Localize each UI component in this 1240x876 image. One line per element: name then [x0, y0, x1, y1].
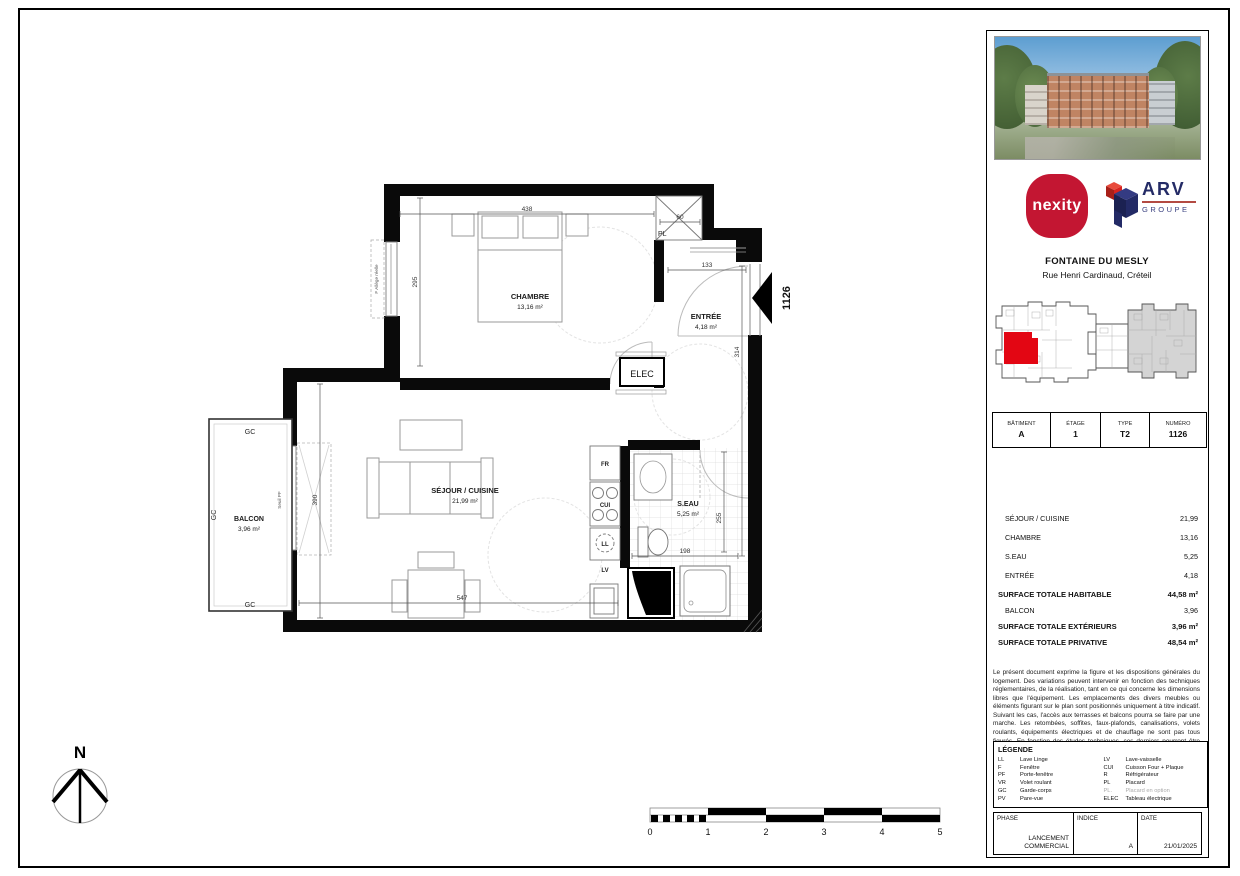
legend-desc: Tableau électrique: [1126, 796, 1172, 803]
arv-name: ARV: [1142, 180, 1200, 198]
dim-entree-h: 314: [734, 346, 741, 357]
scale-3: 3: [821, 827, 826, 837]
surface-label: SURFACE TOTALE HABITABLE: [998, 590, 1111, 599]
arv-sub: GROUPE: [1142, 205, 1200, 214]
legend-col-left: LLLave Linge FFenêtre PFPorte-fenêtre VR…: [998, 757, 1098, 802]
unit-cell-type: TYPE T2: [1101, 413, 1150, 447]
surface-label: S.EAU: [998, 552, 1027, 561]
phase-value-line1: LANCEMENT: [1024, 835, 1069, 843]
surface-label: SURFACE TOTALE EXTÉRIEURS: [998, 622, 1117, 631]
project-header: FONTAINE DU MESLY Rue Henri Cardinaud, C…: [992, 256, 1202, 280]
gc-label-top: GC: [245, 429, 256, 436]
unit-cell-numero: NUMÉRO 1126: [1150, 413, 1206, 447]
legend-desc: Placard en option: [1126, 788, 1170, 795]
surface-value: 48,54 m²: [1168, 638, 1198, 647]
scale-2: 2: [763, 827, 768, 837]
legend-abbr: CUI: [1104, 765, 1126, 772]
surface-total-habitable: SURFACE TOTALE HABITABLE 44,58 m²: [998, 590, 1198, 606]
legend-row: LVLave-vaisselle: [1104, 757, 1204, 764]
legend-col-right: LVLave-vaisselle CUICuisson Four + Plaqu…: [1104, 757, 1204, 802]
arv-rule: [1142, 201, 1196, 203]
surface-row: CHAMBRE 13,16: [998, 533, 1198, 552]
surface-row-balcon: BALCON 3,96: [998, 606, 1198, 622]
legend-desc: Réfrigérateur: [1126, 772, 1159, 779]
legend-desc: Lave-vaisselle: [1126, 757, 1162, 764]
legend-abbr: F: [998, 765, 1020, 772]
legend-abbr: PL: [1104, 780, 1126, 787]
legend-row: RRéfrigérateur: [1104, 772, 1204, 779]
surface-row: S.EAU 5,25: [998, 552, 1198, 571]
room-balcon-area: 3,96 m²: [238, 526, 261, 533]
indice-value: A: [1129, 843, 1133, 851]
room-chambre: CHAMBRE: [511, 292, 549, 301]
surface-value: 21,99: [1180, 514, 1198, 523]
surface-value: 13,16: [1180, 533, 1198, 542]
scale-bar: 0 1 2 3 4 5: [638, 796, 958, 844]
surface-total-exterieurs: SURFACE TOTALE EXTÉRIEURS 3,96 m²: [998, 622, 1198, 638]
north-label: N: [74, 743, 86, 762]
gc-label-left: GC: [211, 510, 218, 521]
surface-label: CHAMBRE: [998, 533, 1041, 542]
gc-label-bottom: GC: [245, 602, 256, 609]
legend-row: CUICuisson Four + Plaque: [1104, 765, 1204, 772]
legend-title: LÉGENDE: [998, 745, 1203, 754]
legend-row: GCGarde-corps: [998, 788, 1098, 795]
entrance-arrow-icon: [752, 272, 772, 324]
project-address: Rue Henri Cardinaud, Créteil: [992, 270, 1202, 280]
legend-desc: Garde-corps: [1020, 788, 1052, 795]
legend-abbr: VR: [998, 780, 1020, 787]
surface-value: 3,96: [1184, 606, 1198, 615]
room-sejour-area: 21,99 m²: [452, 498, 478, 505]
legend-abbr: PV: [998, 796, 1020, 803]
room-entree-area: 4,18 m²: [695, 324, 718, 331]
scale-0: 0: [647, 827, 652, 837]
legend-row: PVPare-vue: [998, 796, 1098, 803]
legend-box: LÉGENDE LLLave Linge FFenêtre PFPorte-fe…: [993, 741, 1208, 808]
room-balcon: BALCON: [234, 516, 264, 523]
north-arrow: N: [36, 738, 126, 838]
legend-abbr: PF: [998, 772, 1020, 779]
living-furniture: [367, 420, 493, 618]
legend-abbr: LV: [1104, 757, 1126, 764]
pl-label: PL: [658, 231, 667, 238]
nexity-logo: nexity: [1026, 174, 1088, 238]
surface-total-privative: SURFACE TOTALE PRIVATIVE 48,54 m²: [998, 638, 1198, 654]
date-value: 21/01/2025: [1164, 843, 1197, 851]
nexity-logo-text: nexity: [1032, 197, 1081, 215]
legend-row-optional: PL.Placard en option: [1104, 788, 1204, 795]
arv-groupe-logo: ARV GROUPE: [1100, 176, 1200, 238]
fr-label: FR: [601, 462, 610, 468]
project-name: FONTAINE DU MESLY: [992, 256, 1202, 267]
legend-desc: Porte-fenêtre: [1020, 772, 1053, 779]
unit-header: BÂTIMENT: [1007, 421, 1035, 427]
ll-label: LL: [601, 542, 609, 548]
surface-value: 3,96 m²: [1172, 622, 1198, 631]
unit-cell-etage: ÉTAGE 1: [1051, 413, 1101, 447]
unit-value: 1126: [1169, 429, 1187, 439]
date-header: DATE: [1141, 815, 1198, 822]
legend-desc: Pare-vue: [1020, 796, 1043, 803]
legend-row: LLLave Linge: [998, 757, 1098, 764]
unit-header: ÉTAGE: [1066, 421, 1085, 427]
dim-sejour-w: 547: [457, 595, 468, 602]
room-entree: ENTRÉE: [691, 312, 721, 321]
legend-abbr: PL.: [1104, 788, 1126, 795]
surface-label: SURFACE TOTALE PRIVATIVE: [998, 638, 1107, 647]
dim-sejour-h: 390: [312, 494, 319, 505]
scale-5: 5: [937, 827, 942, 837]
unit-number-label: 1126: [781, 286, 793, 310]
unit-value: T2: [1120, 429, 1130, 439]
unit-header: NUMÉRO: [1166, 421, 1191, 427]
legend-desc: Lave Linge: [1020, 757, 1048, 764]
indice-cell: INDICE A: [1074, 813, 1138, 854]
dim-pl-w: 60: [676, 214, 684, 221]
room-seau-area: 5,25 m²: [677, 511, 700, 518]
legend-abbr: R: [1104, 772, 1126, 779]
lv-label: LV: [601, 568, 608, 574]
seuil-pf-label: Seuil PF: [277, 491, 282, 509]
elec-label: ELEC: [630, 369, 654, 379]
phase-cell: PHASE LANCEMENT COMMERCIAL: [994, 813, 1074, 854]
site-key-plan: [994, 292, 1200, 390]
room-seau: S.EAU: [677, 501, 698, 508]
surface-row: ENTRÉE 4,18: [998, 571, 1198, 590]
legend-row: VRVolet roulant: [998, 780, 1098, 787]
indice-header: INDICE: [1077, 815, 1134, 822]
surface-value: 5,25: [1184, 552, 1198, 561]
legend-desc: Cuisson Four + Plaque: [1126, 765, 1184, 772]
legend-abbr: ELEC: [1104, 796, 1126, 803]
unit-info-table: BÂTIMENT A ÉTAGE 1 TYPE T2 NUMÉRO 1126: [992, 412, 1207, 448]
dim-chambre-h: 295: [412, 276, 419, 287]
arv-cube-icon: [1100, 176, 1140, 232]
scale-1: 1: [705, 827, 710, 837]
legend-desc: Fenêtre: [1020, 765, 1040, 772]
surface-value: 44,58 m²: [1168, 590, 1198, 599]
phase-header: PHASE: [997, 815, 1070, 822]
allege-note: F Allège réelle: [374, 264, 379, 294]
legend-row: PLPlacard: [1104, 780, 1204, 787]
cui-label: CUI: [600, 503, 611, 509]
unit-value: A: [1018, 429, 1024, 439]
floor-plan: PL ELEC FR CUI LL LV: [180, 168, 800, 648]
date-cell: DATE 21/01/2025: [1138, 813, 1201, 854]
legend-abbr: GC: [998, 788, 1020, 795]
legend-desc: Placard: [1126, 780, 1145, 787]
scale-4: 4: [879, 827, 884, 837]
legend-row: FFenêtre: [998, 765, 1098, 772]
building-render-photo: [994, 36, 1201, 160]
room-sejour: SÉJOUR / CUISINE: [431, 486, 499, 495]
dim-chambre-w: 438: [522, 206, 533, 213]
dim-entree-w: 133: [702, 262, 713, 269]
room-chambre-area: 13,16 m²: [517, 304, 543, 311]
legend-abbr: LL: [998, 757, 1020, 764]
surface-value: 4,18: [1184, 571, 1198, 580]
phase-value-line2: COMMERCIAL: [1024, 843, 1069, 851]
legend-desc: Volet roulant: [1020, 780, 1052, 787]
kitchen-strip: [590, 446, 620, 618]
dim-seau-h: 255: [716, 512, 723, 523]
unit-header: TYPE: [1118, 421, 1133, 427]
surface-label: ENTRÉE: [998, 571, 1034, 580]
legend-row: ELECTableau électrique: [1104, 796, 1204, 803]
scale-bar-graphic: [650, 808, 940, 822]
unit-cell-batiment: BÂTIMENT A: [993, 413, 1051, 447]
legend-row: PFPorte-fenêtre: [998, 772, 1098, 779]
unit-value: 1: [1073, 429, 1078, 439]
balcony: [209, 419, 292, 611]
phase-table: PHASE LANCEMENT COMMERCIAL INDICE A DATE…: [993, 812, 1202, 855]
surface-label: SÉJOUR / CUISINE: [998, 514, 1069, 523]
scale-tick-labels: 0 1 2 3 4 5: [647, 827, 942, 837]
surface-label: BALCON: [998, 606, 1035, 615]
dim-seau-w: 198: [680, 548, 691, 555]
surface-row: SÉJOUR / CUISINE 21,99: [998, 514, 1198, 533]
surface-summary: SÉJOUR / CUISINE 21,99 CHAMBRE 13,16 S.E…: [998, 514, 1198, 654]
